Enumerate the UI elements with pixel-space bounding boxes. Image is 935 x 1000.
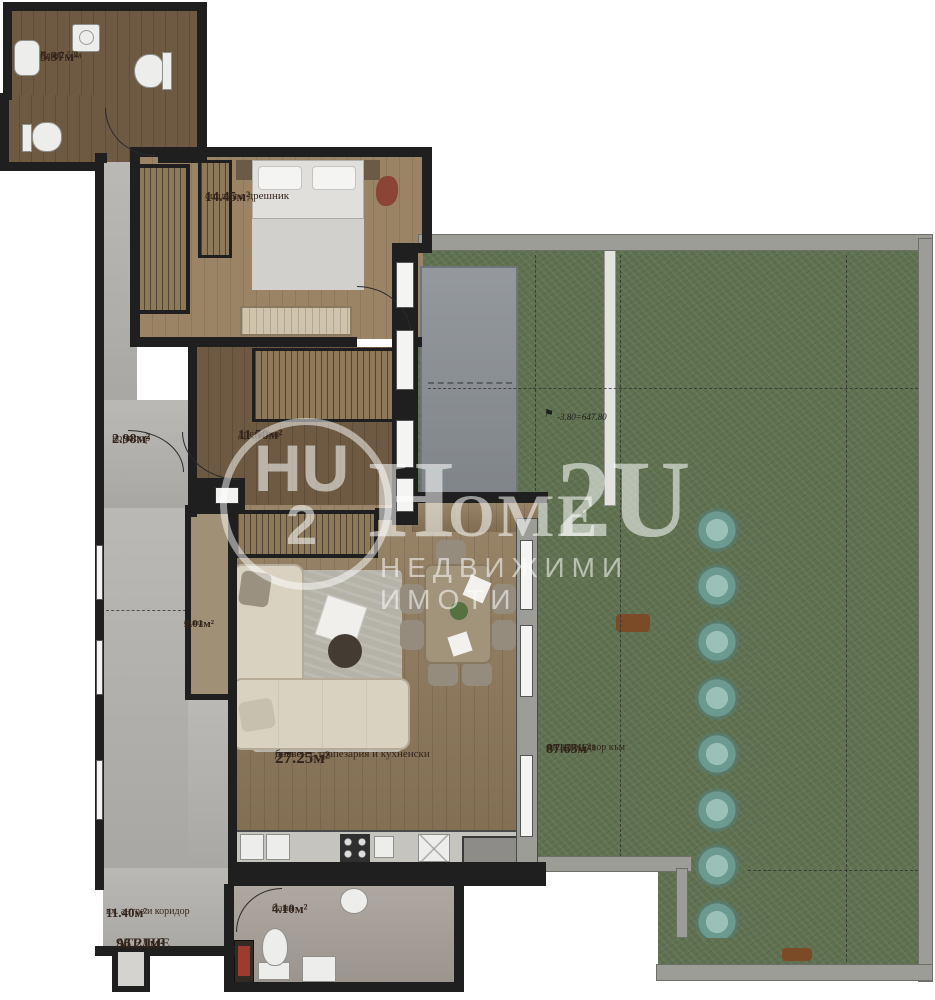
fence-right bbox=[918, 238, 933, 982]
plant-icon bbox=[376, 176, 398, 206]
sofa-pillow bbox=[238, 697, 277, 732]
wall bbox=[130, 147, 140, 347]
coffee-table bbox=[328, 634, 362, 668]
survey-line bbox=[106, 610, 186, 611]
wall bbox=[3, 2, 12, 100]
room-area: 11.50м² bbox=[238, 428, 282, 444]
bedroom-wardrobe bbox=[198, 160, 232, 258]
room-area: 2.01м² bbox=[184, 618, 214, 631]
room-area: 14.45м² bbox=[205, 190, 250, 206]
hedge-shrubs bbox=[686, 502, 748, 938]
survey-line bbox=[428, 388, 918, 389]
wall bbox=[130, 337, 357, 347]
washing-machine-icon bbox=[302, 956, 336, 982]
shaft-hatch bbox=[215, 487, 239, 504]
private-garden-bottom-wall bbox=[534, 856, 692, 872]
window bbox=[396, 478, 414, 512]
wall bbox=[413, 337, 422, 347]
chair bbox=[400, 584, 424, 614]
wall bbox=[410, 492, 548, 503]
side-corridor-floor bbox=[103, 508, 189, 880]
side-corridor-floor-low bbox=[188, 700, 230, 880]
chair bbox=[436, 540, 466, 564]
washing-machine-drum bbox=[79, 30, 94, 45]
toilet-tank bbox=[22, 124, 32, 152]
room-area: 96.21м² bbox=[116, 936, 164, 953]
round-sink-icon bbox=[340, 888, 368, 914]
chair bbox=[492, 584, 516, 614]
stove-icon bbox=[340, 834, 370, 862]
wall bbox=[0, 93, 9, 171]
counter-board bbox=[374, 836, 394, 858]
window bbox=[396, 420, 414, 468]
nightstand bbox=[364, 160, 380, 180]
wall bbox=[3, 2, 207, 11]
kitchen-sink-icon bbox=[266, 834, 290, 860]
wall bbox=[224, 982, 464, 992]
wall bbox=[224, 884, 234, 992]
garden-area: 87.63м² bbox=[546, 742, 591, 758]
sink-icon bbox=[14, 40, 40, 76]
floor-plan: ⚑ -3.80=647.80 bbox=[0, 0, 935, 1000]
window bbox=[520, 540, 533, 610]
chair bbox=[428, 662, 458, 686]
nightstand bbox=[236, 160, 252, 180]
fence-bottom bbox=[656, 964, 933, 981]
wall bbox=[228, 508, 237, 874]
wall bbox=[454, 862, 464, 992]
window bbox=[96, 640, 103, 695]
parking-pad-line bbox=[428, 382, 512, 384]
shaft-red-inner bbox=[238, 946, 250, 976]
toilet-tank bbox=[162, 52, 172, 90]
wall bbox=[422, 147, 432, 253]
second-sink-icon bbox=[418, 834, 450, 862]
toilet-icon bbox=[134, 54, 164, 88]
survey-line bbox=[535, 255, 536, 501]
kitchen-sink-icon bbox=[240, 834, 264, 860]
window bbox=[396, 262, 414, 308]
survey-line bbox=[620, 255, 621, 857]
wall bbox=[95, 163, 104, 509]
dresser bbox=[240, 306, 352, 336]
chair bbox=[462, 662, 492, 686]
toilet-icon bbox=[262, 928, 288, 966]
hedge-side-wall bbox=[676, 868, 688, 938]
wall bbox=[0, 162, 98, 171]
table-plant-icon bbox=[450, 602, 468, 620]
garden-grass-private bbox=[536, 500, 688, 866]
fence-top bbox=[418, 234, 933, 251]
survey-line bbox=[748, 870, 918, 871]
window bbox=[396, 330, 414, 390]
room-area: 2.98м² bbox=[112, 432, 150, 448]
wall bbox=[130, 147, 432, 157]
pillow bbox=[258, 166, 302, 190]
room-area: 5.37м² bbox=[40, 50, 78, 66]
window bbox=[96, 760, 103, 820]
window bbox=[520, 625, 533, 697]
window bbox=[96, 545, 103, 600]
walkin-shelving bbox=[252, 348, 412, 422]
pillow bbox=[312, 166, 356, 190]
blanket bbox=[252, 218, 364, 290]
garden-bench bbox=[616, 614, 650, 632]
garden-bench bbox=[782, 948, 812, 961]
chair bbox=[492, 620, 516, 650]
chair bbox=[400, 620, 424, 650]
hall-wardrobe bbox=[134, 164, 190, 314]
room-area: 27.25м² bbox=[275, 748, 330, 768]
garden-divider-wall bbox=[604, 250, 616, 506]
wall bbox=[95, 153, 107, 163]
living-top-wardrobe bbox=[234, 510, 378, 558]
toilet-icon bbox=[32, 122, 62, 152]
sofa-pillow bbox=[238, 570, 272, 608]
wall bbox=[228, 862, 546, 886]
wall bbox=[197, 2, 207, 162]
window bbox=[520, 755, 533, 837]
room-area: 11.40м² bbox=[106, 906, 147, 921]
room-area: 4.10м² bbox=[272, 902, 308, 917]
survey-line bbox=[846, 255, 847, 967]
